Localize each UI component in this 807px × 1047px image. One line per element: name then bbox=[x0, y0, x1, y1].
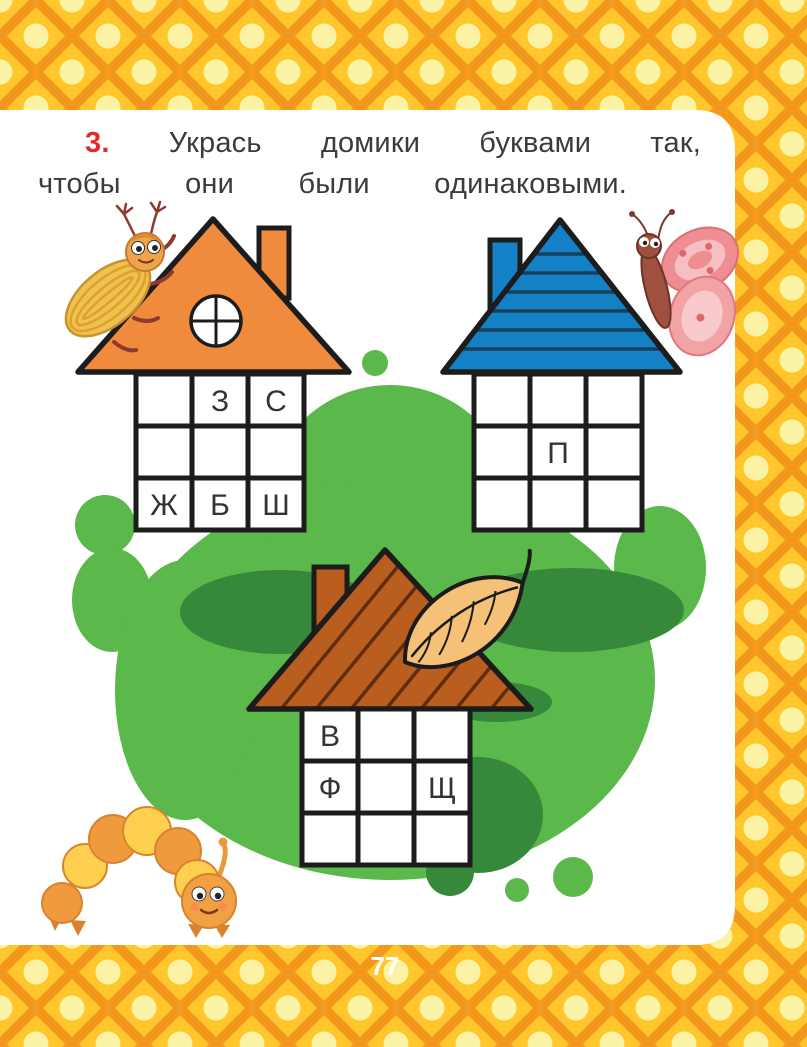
letter-cell[interactable] bbox=[358, 709, 414, 761]
letter-cell[interactable] bbox=[586, 374, 642, 426]
letter-cell[interactable] bbox=[474, 426, 530, 478]
letter-cell[interactable] bbox=[136, 374, 192, 426]
page-number: 77 bbox=[343, 951, 427, 982]
grass-dot bbox=[505, 878, 529, 902]
task-line-1-text: Укрась домики буквами так, bbox=[169, 127, 701, 159]
cell-letter: Ф bbox=[319, 772, 342, 805]
grass-dot bbox=[362, 350, 388, 376]
task-text-line-2: чтобы они были одинаковыми. bbox=[38, 167, 627, 201]
grass-dot bbox=[553, 857, 593, 897]
letter-cell[interactable] bbox=[530, 374, 586, 426]
letter-cell[interactable] bbox=[302, 813, 358, 865]
cell-letter: П bbox=[547, 437, 569, 470]
workbook-page: З С Ж Б Ш bbox=[0, 0, 807, 1047]
grass-dot bbox=[108, 552, 128, 572]
letter-cell[interactable] bbox=[474, 374, 530, 426]
letter-cell[interactable] bbox=[248, 426, 304, 478]
letter-cell[interactable] bbox=[136, 426, 192, 478]
cell-letter: З bbox=[211, 385, 229, 418]
letter-cell[interactable] bbox=[414, 709, 470, 761]
letter-cell[interactable] bbox=[358, 813, 414, 865]
letter-cell[interactable] bbox=[586, 426, 642, 478]
letter-cell[interactable] bbox=[586, 478, 642, 530]
letter-cell[interactable] bbox=[192, 426, 248, 478]
cell-letter: Б bbox=[210, 489, 230, 522]
letter-cell[interactable] bbox=[474, 478, 530, 530]
letter-cell[interactable] bbox=[414, 813, 470, 865]
letter-cell[interactable] bbox=[358, 761, 414, 813]
letter-cell[interactable] bbox=[530, 478, 586, 530]
cell-letter: Ш bbox=[262, 489, 290, 522]
cell-letter: Щ bbox=[428, 772, 456, 805]
cell-letter: С bbox=[265, 385, 287, 418]
cell-letter: В bbox=[320, 720, 340, 753]
task-text-line-1: 3. Укрась домики буквами так, bbox=[85, 126, 701, 160]
task-number: 3. bbox=[85, 127, 110, 159]
task-line-2-text: чтобы они были одинаковыми. bbox=[38, 168, 627, 200]
cell-letter: Ж bbox=[150, 489, 178, 522]
round-window bbox=[191, 296, 241, 346]
